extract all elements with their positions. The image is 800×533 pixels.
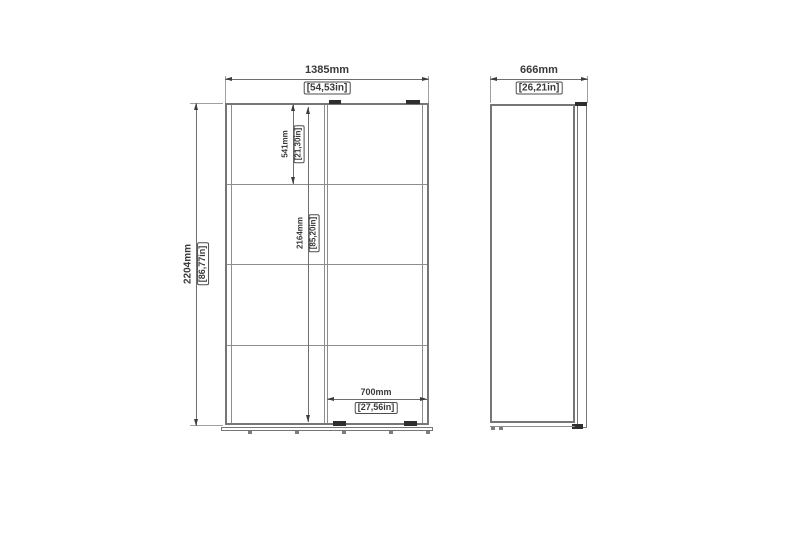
wardrobe-dimension-drawing: 1385mm [54,53in] 2204mm [86,77in] 541mm … (0, 0, 800, 533)
interior-height-arrow-top (306, 107, 310, 114)
front-shelf-line-2 (227, 264, 427, 265)
top-section-arrow-bottom (291, 177, 295, 184)
front-shelf-line-3 (227, 345, 427, 346)
top-section-arrow-top (291, 104, 295, 111)
front-width-dimension-line (225, 79, 429, 80)
side-depth-label-mm: 666mm (520, 64, 558, 76)
side-cabinet-outline (490, 104, 575, 423)
door-width-label-mm: 700mm (360, 388, 391, 398)
front-height-label-mm: 2204mm (183, 244, 194, 284)
front-foot-1 (248, 431, 252, 434)
front-foot-2 (295, 431, 299, 434)
side-door-panel (577, 102, 587, 428)
front-foot-5 (426, 431, 430, 434)
interior-height-label-in: [85,20in] (309, 214, 320, 252)
front-base-rail (221, 427, 433, 431)
front-width-arrow-left (225, 77, 232, 81)
door-width-label-in: [27,56in] (355, 402, 398, 414)
front-width-label-in: [54,53in] (304, 82, 351, 95)
front-top-roller-left (329, 100, 341, 104)
side-foot-2 (499, 427, 503, 430)
top-section-label-in: [21,30in] (294, 125, 305, 163)
door-width-arrow-right (420, 397, 427, 401)
front-width-label-mm: 1385mm (305, 64, 349, 76)
side-depth-label-in: [26,21in] (516, 82, 563, 95)
front-height-label-in: [86,77in] (197, 243, 209, 286)
interior-height-label-mm: 2164mm (297, 217, 306, 249)
interior-height-dimension-line (308, 107, 309, 422)
front-foot-4 (389, 431, 393, 434)
front-foot-3 (342, 431, 346, 434)
front-bottom-roller-right (404, 421, 417, 426)
door-width-dimension-line (327, 399, 427, 400)
front-shelf-line-1 (227, 184, 427, 185)
interior-height-arrow-bottom (306, 415, 310, 422)
front-width-arrow-right (422, 77, 429, 81)
top-section-label-mm: 541mm (282, 130, 291, 158)
front-bottom-roller-left (333, 421, 346, 426)
side-door-top-roller (575, 102, 587, 106)
front-top-roller-right (406, 100, 420, 104)
side-depth-arrow-left (490, 77, 497, 81)
side-depth-dimension-line (490, 79, 588, 80)
front-height-arrow-top (194, 103, 198, 110)
door-width-arrow-left (327, 397, 334, 401)
side-foot-1 (491, 427, 495, 430)
front-height-arrow-bottom (194, 419, 198, 426)
side-depth-arrow-right (581, 77, 588, 81)
